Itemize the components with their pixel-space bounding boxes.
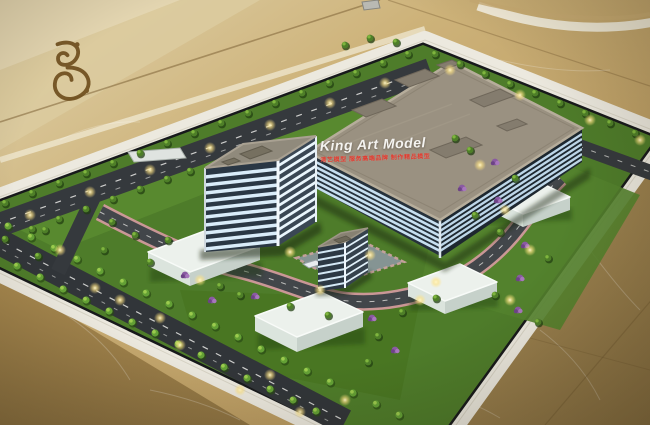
scene-canvas: [0, 0, 650, 425]
tower-facade-southwest: [205, 160, 278, 252]
model-photo: King Art Model 港艺模型 服务高端品牌 制作精品模型: [0, 0, 650, 425]
small-building-facade-southwest: [318, 242, 345, 291]
metal-clip: [362, 0, 380, 10]
